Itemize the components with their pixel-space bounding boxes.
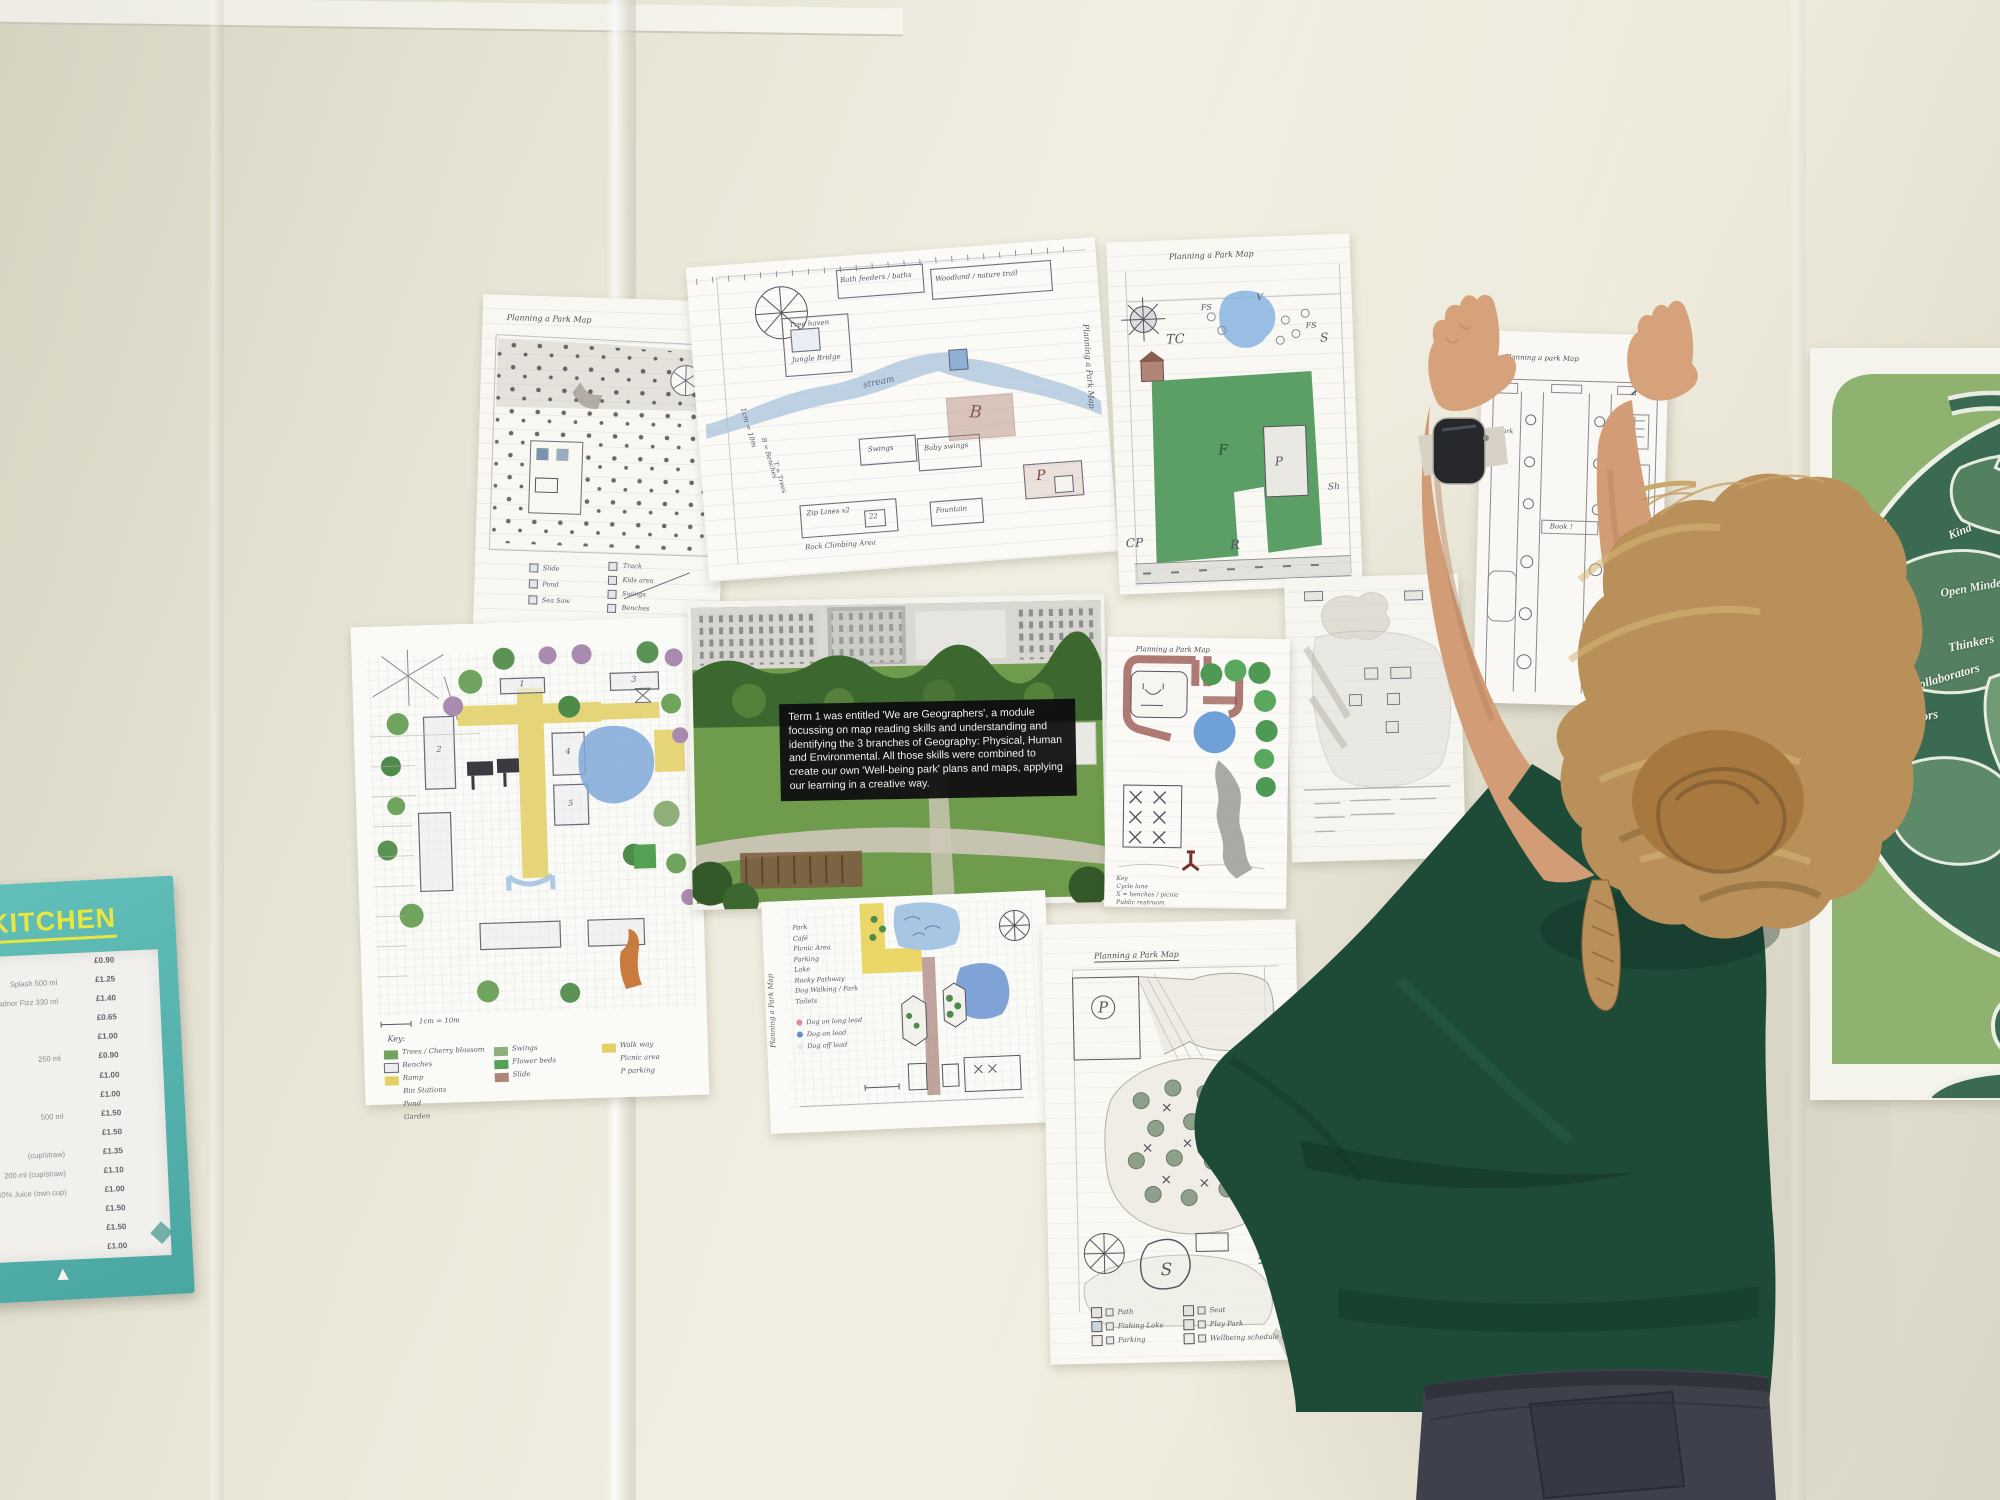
legend-item: Walk way	[620, 1038, 660, 1052]
kitchen-logo-icon: ▲	[53, 1263, 73, 1286]
photo-caption: Term 1 was entitled 'We are Geographers'…	[779, 699, 1077, 801]
menu-item-price: £1.50	[102, 1127, 122, 1137]
menu-item-price: £1.10	[104, 1165, 124, 1175]
legend-item: Slide	[513, 1067, 557, 1081]
kitchen-title: KITCHEN	[0, 903, 117, 945]
label-key: Key:	[387, 1034, 405, 1044]
menu-item-price: £0.90	[98, 1051, 118, 1061]
menu-item-price: £1.35	[103, 1146, 123, 1156]
person	[1100, 280, 2000, 1500]
menu-item-price: £0.90	[94, 955, 114, 965]
kitchen-sign-title: LIKITCHEN	[0, 903, 117, 943]
legend-item: Slide	[543, 560, 572, 577]
kitchen-menu-list: £0.90 Splash 500 ml £1.25 Radnor Fizz 33…	[0, 949, 172, 1265]
pergola-roof	[740, 851, 863, 889]
menu-item-price: £1.00	[100, 1089, 120, 1099]
map-colorful-drawing	[351, 617, 710, 1106]
menu-item-name: 40% Juice (own cup)	[0, 1188, 67, 1200]
menu-item-price: £1.40	[96, 993, 116, 1003]
menu-item-price: £1.50	[106, 1222, 126, 1232]
menu-item-name: Radnor Fizz 330 ml	[0, 997, 58, 1009]
label-1: 1	[519, 679, 524, 688]
right-hand	[1627, 301, 1698, 401]
menu-item-price: £1.00	[107, 1241, 127, 1251]
label-3: 3	[631, 675, 636, 684]
menu-item-price: £1.00	[104, 1184, 124, 1194]
legend-item: Sea Saw	[542, 592, 571, 609]
map-yellowpath-paper: Planning a Park Map ParkCaféPicnic AreaP…	[761, 890, 1054, 1134]
menu-item-price: £1.50	[101, 1108, 121, 1118]
menu-item-price: £1.25	[95, 974, 115, 984]
menu-item-name: (cup/straw)	[28, 1150, 65, 1161]
label-p: P	[1036, 467, 1047, 484]
map-legend: SlidePondSea Saw	[542, 560, 572, 609]
legend-item: Kids area	[622, 573, 654, 588]
person-trousers	[1416, 1369, 1776, 1500]
label-zip-count: 22	[869, 512, 878, 521]
label-4: 4	[565, 747, 570, 756]
label-scale: 1cm = 10m	[419, 1016, 460, 1025]
label-b: B	[969, 402, 983, 423]
legend-item: Swings	[622, 587, 654, 602]
kitchen-menu-sign: LIKITCHEN £0.90 Splash 500 ml £1.25 Radn…	[0, 876, 195, 1307]
legend-item: Flower beds	[512, 1054, 556, 1068]
trouser-pocket	[1530, 1392, 1684, 1498]
menu-item-name: 500 ml	[41, 1111, 64, 1121]
apple-watch	[1418, 418, 1508, 484]
watch-crown	[1483, 435, 1489, 441]
menu-item-name: 250 ml	[38, 1054, 61, 1064]
map-dog-legend: Dog on long leadDog on leadDog off lead	[796, 1014, 863, 1053]
legend-item: Garden	[404, 1108, 487, 1124]
legend-item: Pond	[542, 576, 571, 593]
menu-item-price: £1.00	[97, 1032, 117, 1042]
label-2: 2	[436, 745, 441, 754]
green-box	[634, 844, 657, 869]
map-stream-paper: Bath feeders / baths Woodland / nature t…	[686, 237, 1118, 582]
lake-top	[893, 901, 961, 952]
photo-print-paper: Term 1 was entitled 'We are Geographers'…	[687, 594, 1110, 910]
menu-item-price: £1.50	[105, 1203, 125, 1213]
compass-rose-icon	[999, 910, 1030, 941]
bridge-icon	[949, 349, 968, 370]
legend-item: P parking	[620, 1064, 660, 1078]
map-legend: Trees / Cherry blossomBenchesRampBin Sta…	[402, 1044, 487, 1125]
menu-item-price: £1.00	[99, 1070, 119, 1080]
menu-item-name: 200 ml (cup/straw)	[4, 1169, 66, 1181]
legend-item: Picnic area	[620, 1051, 660, 1065]
map-legend: ParkCaféPicnic AreaParkingLakeRocky Path…	[792, 920, 859, 1007]
map-colorful-paper: 1cm = 10m Key: 2 1 3 4 5 Trees / Cherry …	[351, 617, 710, 1106]
map-legend: Walk wayPicnic areaP parking	[620, 1038, 661, 1078]
map-stream-drawing	[686, 237, 1118, 582]
legend-item: Track	[623, 559, 655, 574]
map-legend: SwingsFlower bedsSlide	[512, 1041, 557, 1081]
menu-item-name: Splash 500 ml	[10, 978, 58, 989]
person-hair	[1557, 474, 1926, 1011]
legend-item: Benches	[621, 601, 653, 616]
label-5: 5	[568, 799, 573, 808]
legend-item: Trees / Cherry blossom	[402, 1044, 485, 1060]
menu-item-price: £0.65	[97, 1012, 117, 1022]
left-hand	[1428, 295, 1516, 411]
classroom-wall-scene: Planning a Park Map SlidePondSea Saw Tra…	[0, 0, 2000, 1500]
